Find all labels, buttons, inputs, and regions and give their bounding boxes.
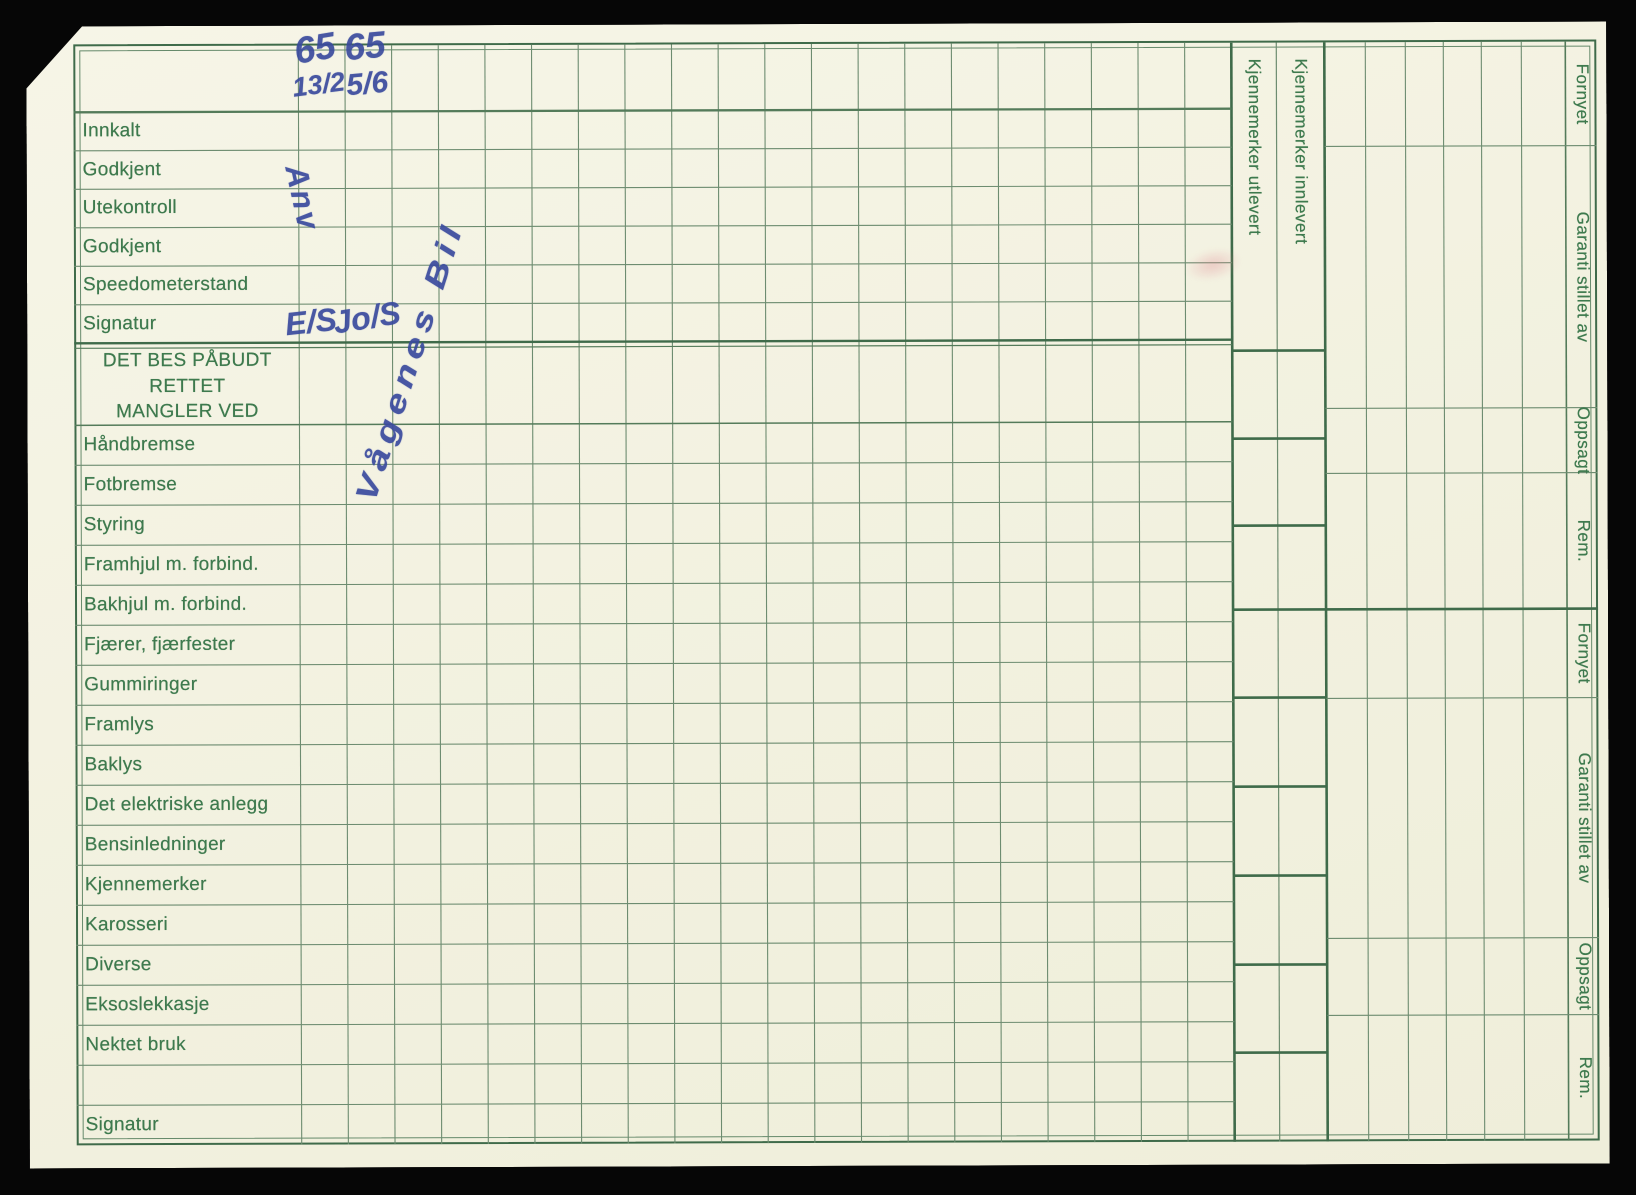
handwritten-value-col1: 65 [291, 25, 338, 73]
left-row-label: Godkjent [74, 227, 298, 266]
left-row-label: Nektet bruk [76, 1025, 300, 1066]
left-row-label: Speedometerstand [74, 266, 298, 305]
right-panel-label: Rem. [1569, 473, 1598, 609]
left-row-label: Gummiringer [75, 665, 299, 706]
handwritten-date-col1: 13/2 [291, 66, 347, 103]
left-row-label: Fjærer, fjærfester [75, 625, 299, 666]
inspection-card: InnkaltGodkjentUtekontrollGodkjentSpeedo… [26, 22, 1610, 1169]
left-row-label: Fotbremse [75, 465, 299, 506]
left-row-label: Håndbremse [74, 425, 298, 466]
section-header-line2: MANGLER VED [116, 399, 259, 425]
left-row-label: Signatur [74, 304, 298, 343]
left-row-label [76, 1065, 300, 1106]
right-panel-label: Rem. [1570, 1015, 1599, 1141]
left-row-label: Framhjul m. forbind. [75, 545, 299, 586]
right-panel-label: Garanti stillet av [1569, 698, 1599, 938]
handwritten-date-col2: 5/6 [345, 66, 390, 104]
left-row-label: Det elektriske anlegg [76, 785, 300, 826]
left-row-label: Signatur [77, 1105, 301, 1146]
left-row-label: Bensinledninger [76, 825, 300, 866]
left-row-label: Framlys [75, 705, 299, 746]
scan-background: { "left_column": { "top_rows": [ {"label… [0, 0, 1636, 1195]
left-row-label: Bakhjul m. forbind. [75, 585, 299, 626]
right-panel-label: Oppsagt [1570, 938, 1599, 1015]
section-header: DET BES PÅBUDT RETTET MANGLER VED [74, 348, 300, 426]
left-row-label: Diverse [76, 945, 300, 986]
handwritten-value-col2: 65 [342, 24, 387, 70]
right-panel-label: Fornyet [1569, 609, 1598, 698]
section-header-line1: DET BES PÅBUDT RETTET [74, 348, 300, 400]
left-row-label: Baklys [75, 745, 299, 786]
kjennemerker-utlevert-header: Kjennemerker utlevert [1231, 43, 1277, 365]
left-row-label: Innkalt [73, 112, 297, 151]
left-row-label: Godkjent [74, 150, 298, 189]
left-row-label: Karosseri [76, 905, 300, 946]
left-row-label: Styring [75, 505, 299, 546]
kjennemerker-innlevert-header: Kjennemerker innlevert [1276, 42, 1325, 364]
right-panel-label: Garanti stillet av [1568, 146, 1598, 408]
left-row-label: Kjennemerker [76, 865, 300, 906]
left-row-label: Eksoslekkasje [76, 985, 300, 1026]
right-panel-label: Oppsagt [1568, 408, 1597, 473]
right-panel-label: Fornyet [1567, 43, 1596, 146]
left-row-label: Utekontroll [74, 189, 298, 228]
